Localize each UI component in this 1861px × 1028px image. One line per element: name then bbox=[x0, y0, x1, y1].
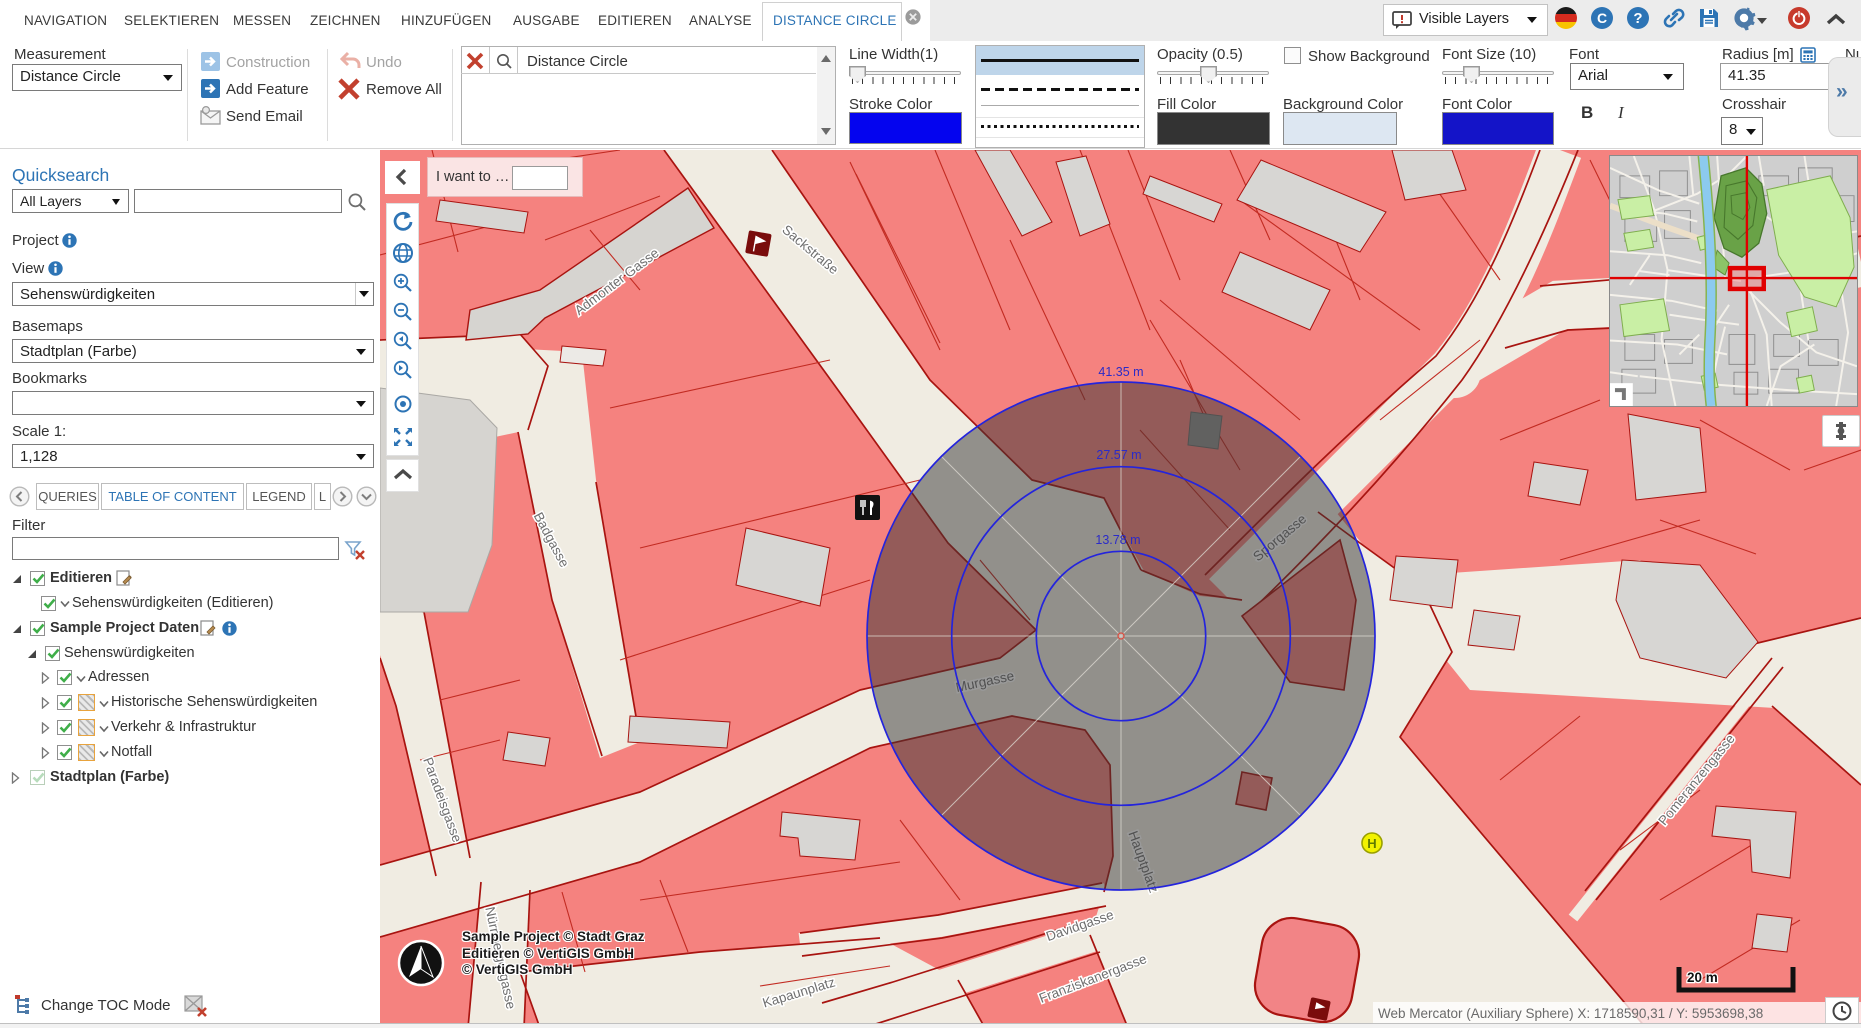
svg-text:H: H bbox=[1367, 836, 1376, 851]
svg-text:27.57 m: 27.57 m bbox=[1096, 448, 1141, 462]
svg-text:C: C bbox=[1597, 10, 1607, 26]
svg-text:20 m: 20 m bbox=[1687, 970, 1718, 985]
svg-text:13.78 m: 13.78 m bbox=[1095, 533, 1140, 547]
svg-text:41.35 m: 41.35 m bbox=[1098, 365, 1143, 379]
svg-text:?: ? bbox=[1633, 10, 1642, 27]
